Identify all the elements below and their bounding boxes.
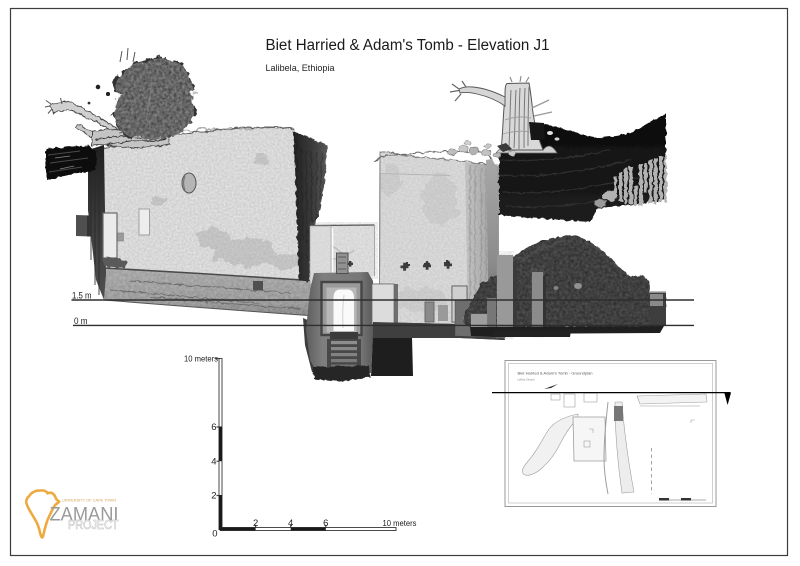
svg-text:0 m: 0 m [74,316,88,326]
svg-text:2: 2 [253,518,258,529]
svg-text:1.5 m: 1.5 m [72,291,92,301]
svg-text:Lalibela, Ethiopia: Lalibela, Ethiopia [266,63,336,74]
svg-text:Biet Harried & Adam's Tomb -: Biet Harried & Adam's Tomb - Groundplan [518,371,593,376]
svg-text:PROJECT: PROJECT [68,518,119,532]
svg-text:4: 4 [288,518,293,529]
svg-text:UNIVERSITY OF CAPE TOWN: UNIVERSITY OF CAPE TOWN [62,498,116,503]
svg-text:2: 2 [211,491,216,502]
svg-text:0: 0 [212,529,217,540]
svg-text:Lalibela, Ethiopia: Lalibela, Ethiopia [518,378,535,382]
svg-text:Biet Harried & Adam's Tomb - E: Biet Harried & Adam's Tomb - Elevation J… [266,37,550,54]
svg-text:6: 6 [323,518,328,529]
svg-text:4: 4 [211,456,216,467]
svg-text:10 meters: 10 meters [383,518,417,528]
svg-text:6: 6 [211,422,216,433]
svg-text:10 meters: 10 meters [184,354,218,364]
